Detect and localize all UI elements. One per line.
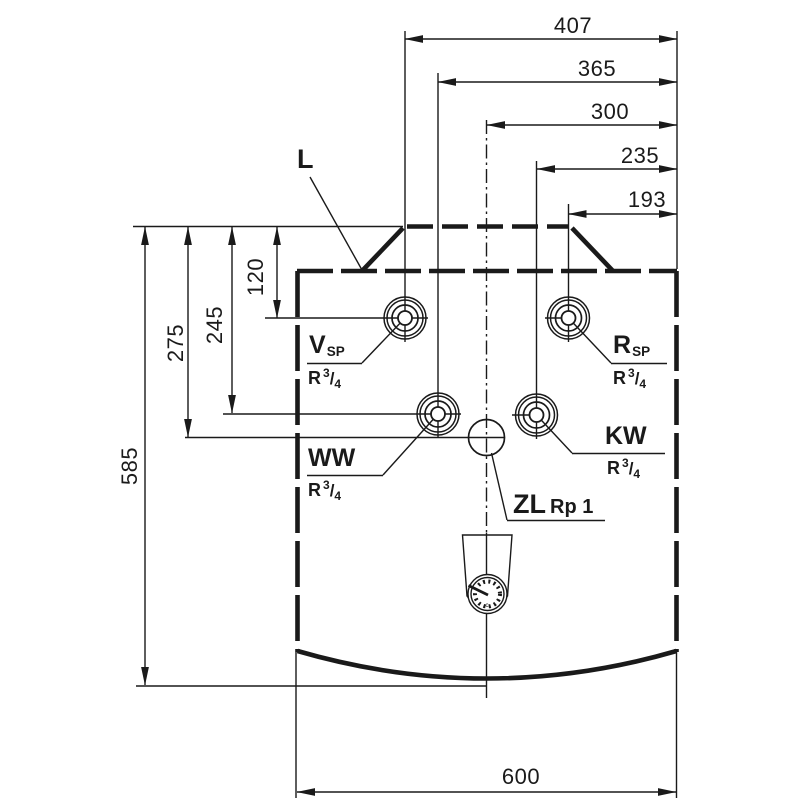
rsp-label: RSP bbox=[613, 331, 650, 359]
dim-value-300: 300 bbox=[591, 99, 629, 124]
rsp-thread-label: R3/4 bbox=[613, 366, 646, 391]
port-labels: L VSP R3/4 RSP R3/4 WW R3/4 KW R3/4 ZLRp… bbox=[297, 144, 650, 519]
dimension-lines bbox=[145, 39, 677, 792]
pressure-gauge: c bbox=[463, 535, 513, 614]
zl-label-leader bbox=[492, 453, 508, 520]
rsp-label-leader bbox=[569, 318, 612, 363]
dim-value-193: 193 bbox=[628, 187, 666, 212]
l-label-leader bbox=[310, 177, 362, 270]
kw-label: KW bbox=[605, 422, 647, 450]
dim-value-245: 245 bbox=[202, 306, 227, 344]
technical-drawing-page: c 407 365 300 235 193 120 245 275 585 60… bbox=[0, 0, 800, 800]
vsp-label: VSP bbox=[309, 331, 345, 359]
ww-label: WW bbox=[308, 444, 356, 472]
kw-thread-label: R3/4 bbox=[607, 456, 640, 481]
dim-value-585: 585 bbox=[117, 447, 142, 485]
dim-value-120: 120 bbox=[243, 258, 268, 296]
dim-value-407: 407 bbox=[554, 13, 592, 38]
dim-value-365: 365 bbox=[578, 56, 616, 81]
outline-chamfer-right bbox=[572, 228, 613, 271]
dim-value-235: 235 bbox=[621, 143, 659, 168]
outline-chamfer-left bbox=[362, 228, 403, 271]
dim-value-600: 600 bbox=[502, 764, 540, 789]
dim-value-275: 275 bbox=[163, 324, 188, 362]
vsp-thread-label: R3/4 bbox=[308, 366, 341, 391]
vsp-label-leader bbox=[362, 318, 405, 363]
zl-label: ZLRp 1 bbox=[513, 489, 593, 519]
dimension-drawing: c 407 365 300 235 193 120 245 275 585 60… bbox=[0, 0, 800, 800]
l-label: L bbox=[297, 144, 314, 174]
ww-thread-label: R3/4 bbox=[308, 478, 341, 503]
